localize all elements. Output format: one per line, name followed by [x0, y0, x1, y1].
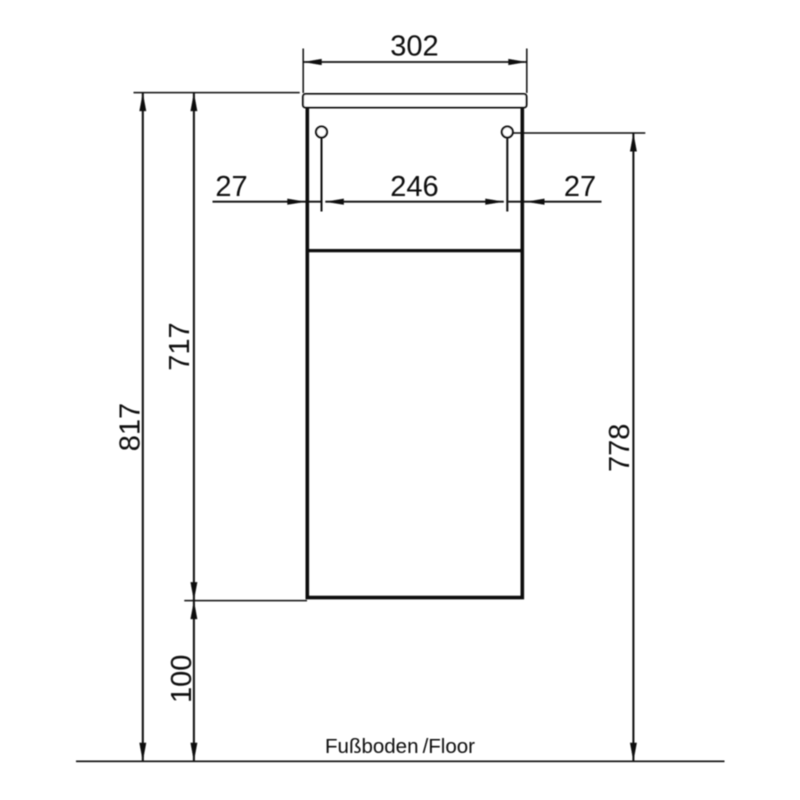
- svg-text:27: 27: [215, 171, 247, 203]
- svg-text:302: 302: [390, 31, 438, 63]
- svg-text:100: 100: [166, 655, 198, 703]
- svg-text:27: 27: [564, 171, 596, 203]
- svg-text:Fußboden /Floor: Fußboden /Floor: [325, 735, 475, 758]
- svg-text:817: 817: [115, 403, 147, 451]
- svg-text:717: 717: [164, 322, 196, 370]
- svg-text:778: 778: [604, 424, 636, 472]
- svg-text:246: 246: [390, 171, 438, 203]
